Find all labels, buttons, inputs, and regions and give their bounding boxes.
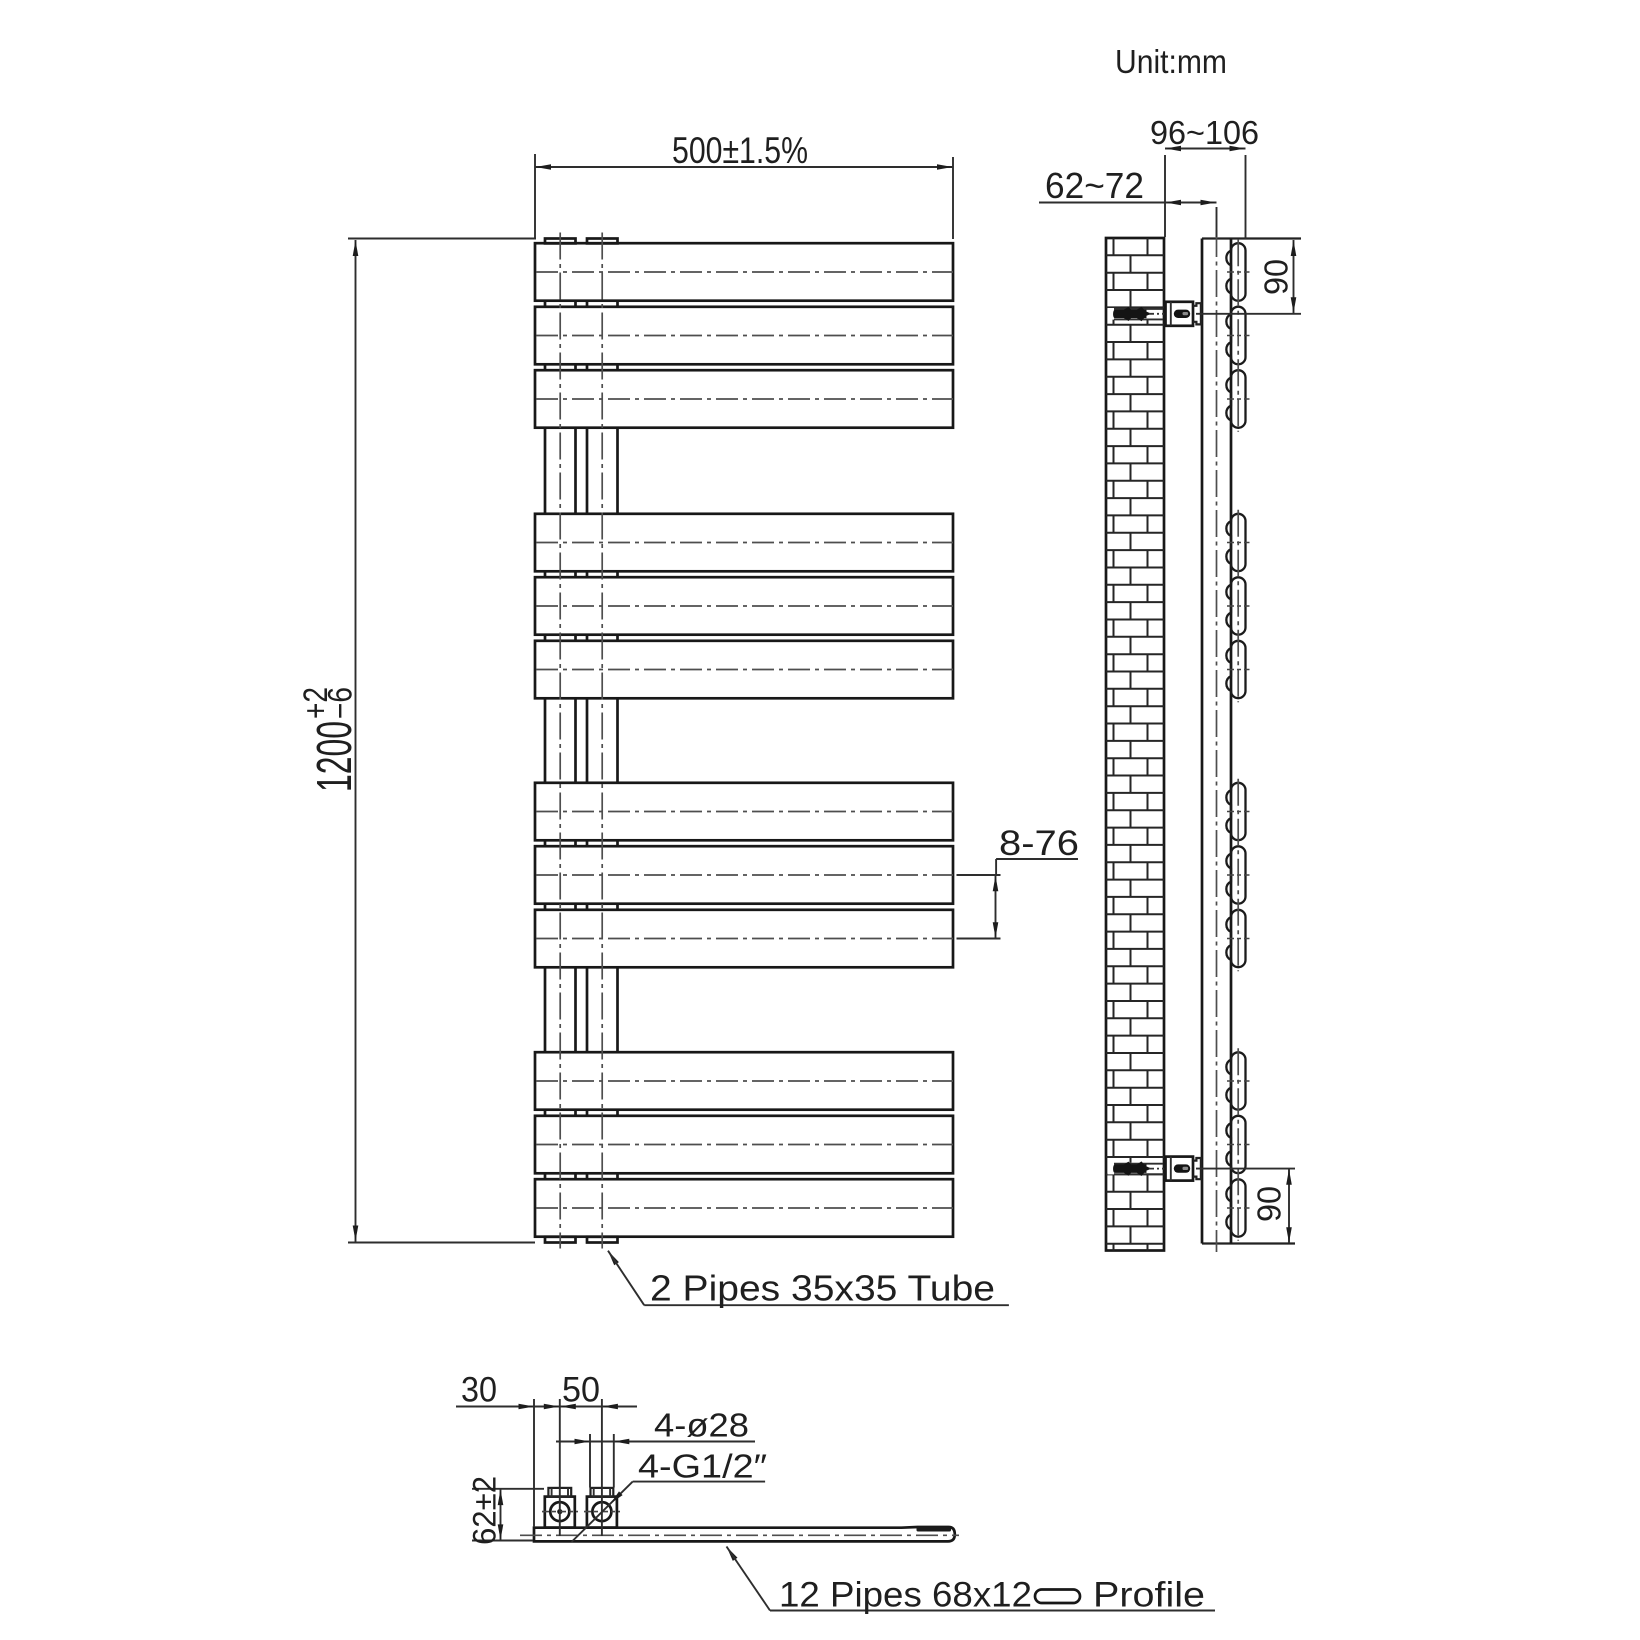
svg-text:500±1.5%: 500±1.5% [672, 129, 808, 171]
svg-text:90: 90 [1259, 259, 1296, 295]
svg-text:4-ø28: 4-ø28 [654, 1408, 749, 1445]
svg-text:8-76: 8-76 [999, 824, 1079, 863]
svg-text:2 Pipes 35x35 Tube: 2 Pipes 35x35 Tube [650, 1268, 995, 1309]
svg-text:4-G1/2″: 4-G1/2″ [638, 1448, 767, 1485]
svg-text:90: 90 [1252, 1186, 1289, 1222]
svg-text:Unit:mm: Unit:mm [1115, 44, 1227, 81]
svg-text:12 Pipes 68x12: 12 Pipes 68x12 [779, 1576, 1032, 1615]
svg-text:1200: 1200 [308, 721, 362, 792]
svg-text:50: 50 [562, 1371, 600, 1410]
svg-text:30: 30 [461, 1371, 497, 1410]
svg-text:62±2: 62±2 [467, 1476, 503, 1545]
svg-text:62~72: 62~72 [1045, 165, 1144, 206]
svg-text:−6: −6 [322, 687, 360, 719]
svg-text:96~106: 96~106 [1150, 115, 1259, 152]
svg-text:Profile: Profile [1093, 1576, 1205, 1615]
